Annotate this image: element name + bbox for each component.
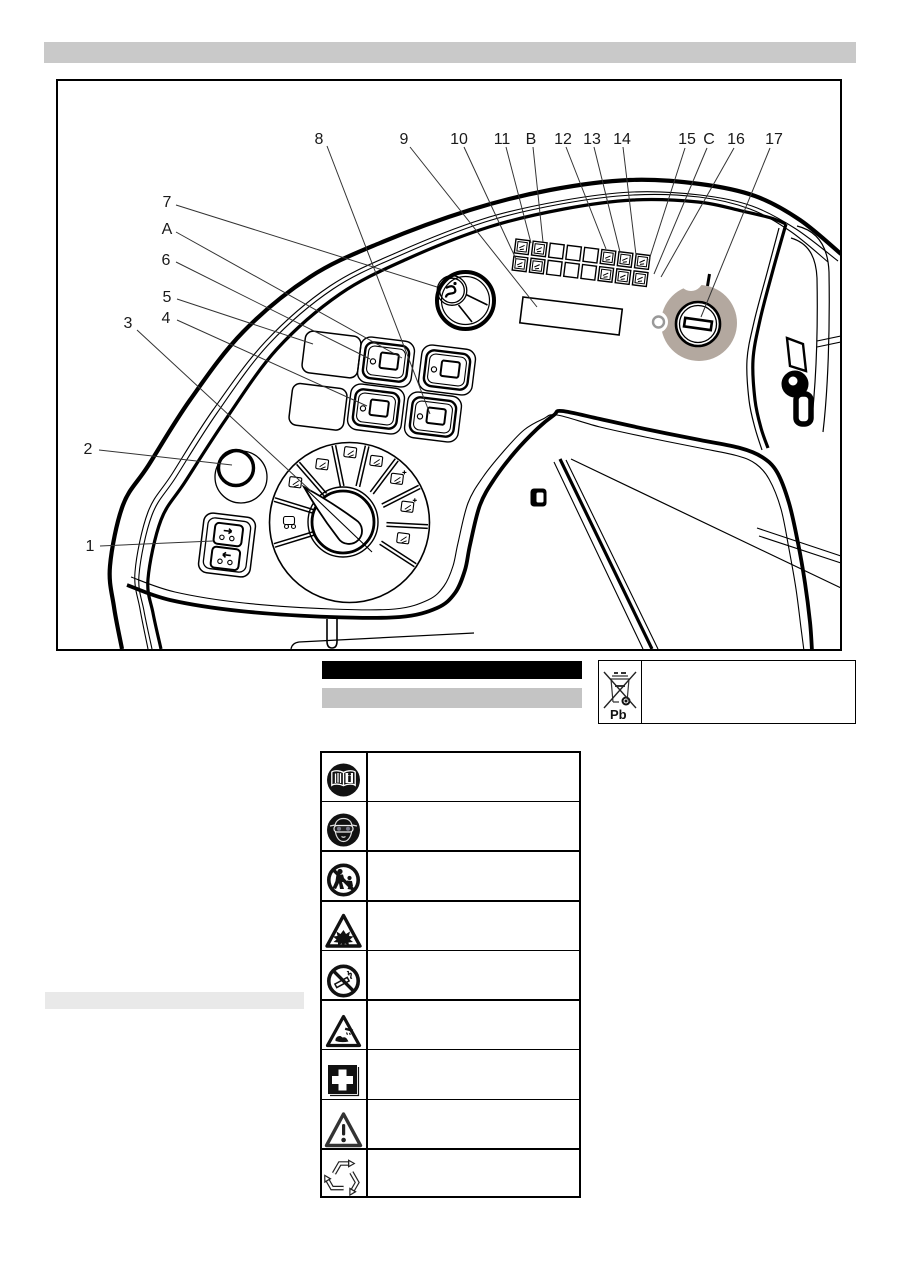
svg-text:10: 10 <box>450 131 468 148</box>
svg-text:6: 6 <box>162 252 171 269</box>
svg-text:9: 9 <box>400 131 409 148</box>
svg-text:8: 8 <box>315 131 324 148</box>
svg-text:7: 7 <box>163 194 172 211</box>
svg-text:15: 15 <box>678 131 696 148</box>
svg-text:1: 1 <box>86 538 95 555</box>
svg-text:3: 3 <box>124 315 133 332</box>
svg-text:B: B <box>526 131 537 148</box>
svg-text:4: 4 <box>162 310 171 327</box>
svg-text:11: 11 <box>494 131 511 148</box>
svg-text:16: 16 <box>727 131 745 148</box>
svg-text:5: 5 <box>163 289 172 306</box>
svg-text:C: C <box>703 131 715 148</box>
svg-text:A: A <box>162 221 173 238</box>
svg-text:12: 12 <box>554 131 572 148</box>
svg-text:14: 14 <box>613 131 631 148</box>
svg-text:17: 17 <box>765 131 783 148</box>
svg-text:2: 2 <box>84 441 93 458</box>
svg-text:13: 13 <box>583 131 601 148</box>
svg-text:Pb: Pb <box>610 707 627 720</box>
